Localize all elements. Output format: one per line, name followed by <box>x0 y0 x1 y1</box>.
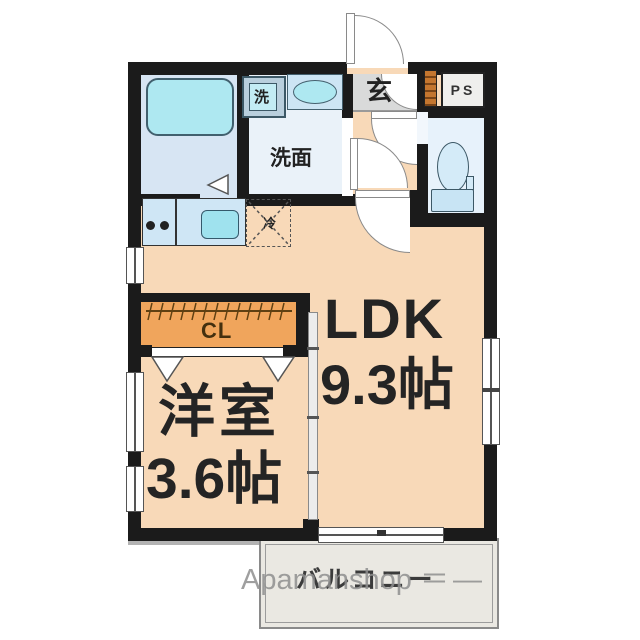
watermark: Apamanshop ＝ — <box>241 556 480 598</box>
ldk-door-leaf <box>355 190 410 198</box>
wall-bottom-left <box>128 528 320 541</box>
wall-left-3 <box>128 452 141 466</box>
western-room-size-label: 3.6帖 <box>146 451 282 508</box>
watermark-text: Apamanshop <box>241 564 412 596</box>
pipe-space-box: PS <box>441 72 485 108</box>
wall-washroom-hall <box>342 74 353 120</box>
western-room-name-label: 洋室 <box>158 384 280 441</box>
closet-door-track <box>152 347 283 357</box>
entrance-label: 玄 <box>366 78 392 104</box>
stove-burner-2 <box>160 221 169 230</box>
wall-right-2 <box>484 445 497 541</box>
wall-bottom-right <box>442 528 497 541</box>
partition-tick-3 <box>307 471 319 474</box>
fridge-label: 冷 <box>262 217 277 230</box>
watermark-marks: ＝ — <box>420 564 480 596</box>
window-balcony-center-tick <box>377 530 386 536</box>
bathtub <box>146 78 234 136</box>
kitchen-counter-divider <box>175 199 177 245</box>
toilet-flush-handle <box>466 176 474 190</box>
vanity-sink-oval <box>293 80 337 104</box>
wall-toilet-bottom <box>417 213 497 227</box>
closet-label: CL <box>201 320 232 342</box>
ldk-name-label: LDK <box>324 291 445 347</box>
stove-burner-1 <box>146 221 155 230</box>
wall-right-1 <box>484 62 497 338</box>
window-western-left-1 <box>126 372 144 452</box>
washroom-door-leaf <box>350 138 358 190</box>
wall-shadow <box>128 541 259 545</box>
wall-closet-top <box>128 293 310 302</box>
wall-partition-stub <box>303 519 319 541</box>
pipe-space-label: PS <box>451 83 476 97</box>
toilet-door-opening <box>417 112 428 144</box>
kitchen-sink <box>201 210 239 239</box>
toilet-tank <box>431 189 474 212</box>
partition-tick-2 <box>307 416 319 419</box>
window-western-left-2 <box>126 466 144 512</box>
window-ldk-right-divider <box>482 388 500 392</box>
floor-plan: バルコニー 洗 洗面 <box>0 0 640 640</box>
window-ldk-left <box>126 247 144 284</box>
partition-tick-1 <box>307 347 319 350</box>
washer-label: 洗 <box>254 90 269 105</box>
wall-closet-bottom-right <box>283 345 310 357</box>
wall-left-1 <box>128 62 141 247</box>
wall-closet-bottom-left <box>128 345 152 357</box>
ldk-size-label: 9.3帖 <box>320 357 454 413</box>
entrance-door-leaf <box>346 13 355 64</box>
washroom-label: 洗面 <box>270 148 312 169</box>
entrance-door-arc <box>355 15 404 64</box>
hall-upper-door-leaf <box>371 111 417 119</box>
shoe-cabinet <box>424 70 437 107</box>
toilet-bowl <box>437 142 469 192</box>
